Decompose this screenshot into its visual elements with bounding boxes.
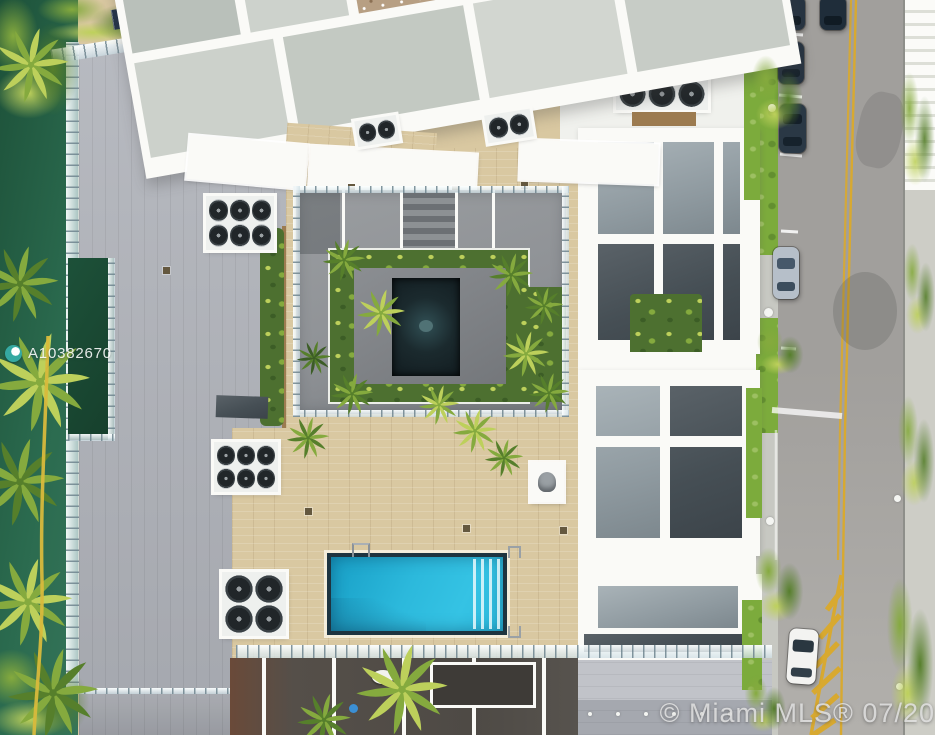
- ground-light: [766, 517, 774, 525]
- roof-rivet: [616, 712, 620, 716]
- white-band: [560, 556, 756, 574]
- lower-level-courtyard: [230, 658, 578, 735]
- window-bay: [578, 370, 760, 556]
- ac-units-well: [222, 572, 286, 636]
- ac-fan-icon: [217, 468, 235, 489]
- ac-fan-icon: [252, 199, 271, 222]
- vent-opening: [538, 472, 556, 492]
- pergola-panel: [283, 5, 480, 131]
- rooftop-vent: [530, 462, 564, 502]
- aerial-photo: A10382670 © Miami MLS® 07/201: [0, 0, 935, 735]
- courtyard-wall: [342, 190, 345, 252]
- ac-fan-icon: [230, 224, 249, 247]
- road-shadow: [833, 272, 897, 350]
- ac-units-well: [214, 442, 278, 492]
- sunken-courtyard: [296, 190, 566, 414]
- pool-ladder: [352, 543, 370, 557]
- ac-fan-icon: [255, 605, 283, 633]
- deck-drain: [560, 527, 567, 534]
- deck-drain: [463, 525, 470, 532]
- watermark-mls-credit: © Miami MLS® 07/201: [660, 698, 935, 729]
- ac-fan-icon: [230, 199, 249, 222]
- pool-shadow: [331, 598, 426, 631]
- ac-fan-icon: [488, 115, 510, 140]
- ac-fan-icon: [217, 445, 235, 466]
- courtyard-wall: [492, 190, 495, 250]
- street-tree-canopy: [752, 320, 808, 380]
- sidewalk-palm: [894, 382, 935, 518]
- parked-car-silver: [773, 247, 799, 299]
- parked-car-white: [786, 628, 819, 685]
- ac-fan-icon: [255, 575, 283, 603]
- ac-fan-icon: [508, 112, 530, 137]
- mooring-line: [0, 0, 140, 735]
- column: [542, 658, 546, 735]
- sidewalk-palm: [900, 232, 935, 344]
- column: [262, 658, 266, 735]
- column: [332, 658, 336, 735]
- watermark-listing-id: A10382670: [5, 345, 112, 362]
- watermark-listing-id-text: A10382670: [28, 345, 112, 362]
- fountain-ripple: [419, 320, 433, 332]
- white-band: [560, 352, 756, 370]
- pergola-panel: [473, 0, 628, 98]
- ac-fan-icon: [209, 224, 228, 247]
- column: [402, 658, 406, 735]
- street-tree-canopy: [746, 46, 808, 138]
- wood-planter-strip: [632, 112, 696, 126]
- ac-fan-icon: [257, 445, 275, 466]
- ac-fan-icon: [678, 81, 705, 107]
- grass-pocket: [746, 388, 762, 518]
- patio-table: [372, 670, 394, 684]
- sidewalk-palm: [896, 58, 935, 198]
- equipment-panel: [216, 395, 269, 419]
- deck-planter: [519, 140, 658, 185]
- lower-balcony: [430, 662, 536, 708]
- mullion: [578, 436, 760, 447]
- courtyard-garden-square: [330, 250, 528, 402]
- ac-units-well: [206, 196, 274, 250]
- roof-rivet: [588, 712, 592, 716]
- pool-handrail: [508, 626, 521, 638]
- ac-fan-icon: [209, 199, 228, 222]
- swimming-pool: [327, 553, 507, 635]
- deck-drain: [305, 508, 312, 515]
- courtyard-garden-band: [528, 287, 566, 402]
- mullion: [714, 138, 723, 344]
- dark-glass-panel: [670, 386, 742, 538]
- reflecting-pond: [392, 278, 460, 376]
- mls-logo-icon: [5, 345, 22, 362]
- pool-steps: [473, 559, 501, 629]
- courtyard-railing: [293, 186, 300, 417]
- ac-fan-icon: [225, 575, 253, 603]
- ac-fan-icon: [225, 605, 253, 633]
- pool-float: [349, 704, 358, 713]
- ac-fan-icon: [376, 118, 396, 140]
- glass-panel: [598, 586, 738, 628]
- ac-fan-icon: [237, 468, 255, 489]
- parked-car: [820, 0, 846, 30]
- glass-panel: [596, 386, 660, 538]
- courtyard-railing: [293, 410, 569, 417]
- deck-south-glass-railing: [236, 645, 772, 658]
- street-tree-canopy: [750, 538, 808, 630]
- ac-fan-icon: [257, 468, 275, 489]
- ac-fan-icon: [358, 121, 378, 143]
- courtyard-stairs: [400, 192, 458, 250]
- ac-fan-icon: [237, 445, 255, 466]
- courtyard-railing: [562, 186, 569, 417]
- pool-handrail: [508, 546, 521, 558]
- roof-rivet: [644, 712, 648, 716]
- ac-fan-icon: [252, 224, 271, 247]
- ground-light: [764, 308, 773, 317]
- watermark-mls-text: © Miami MLS® 07/201: [660, 698, 935, 728]
- courtyard-shaded-walk: [296, 190, 340, 254]
- roof-drain: [163, 267, 170, 274]
- courtyard-railing: [293, 186, 569, 193]
